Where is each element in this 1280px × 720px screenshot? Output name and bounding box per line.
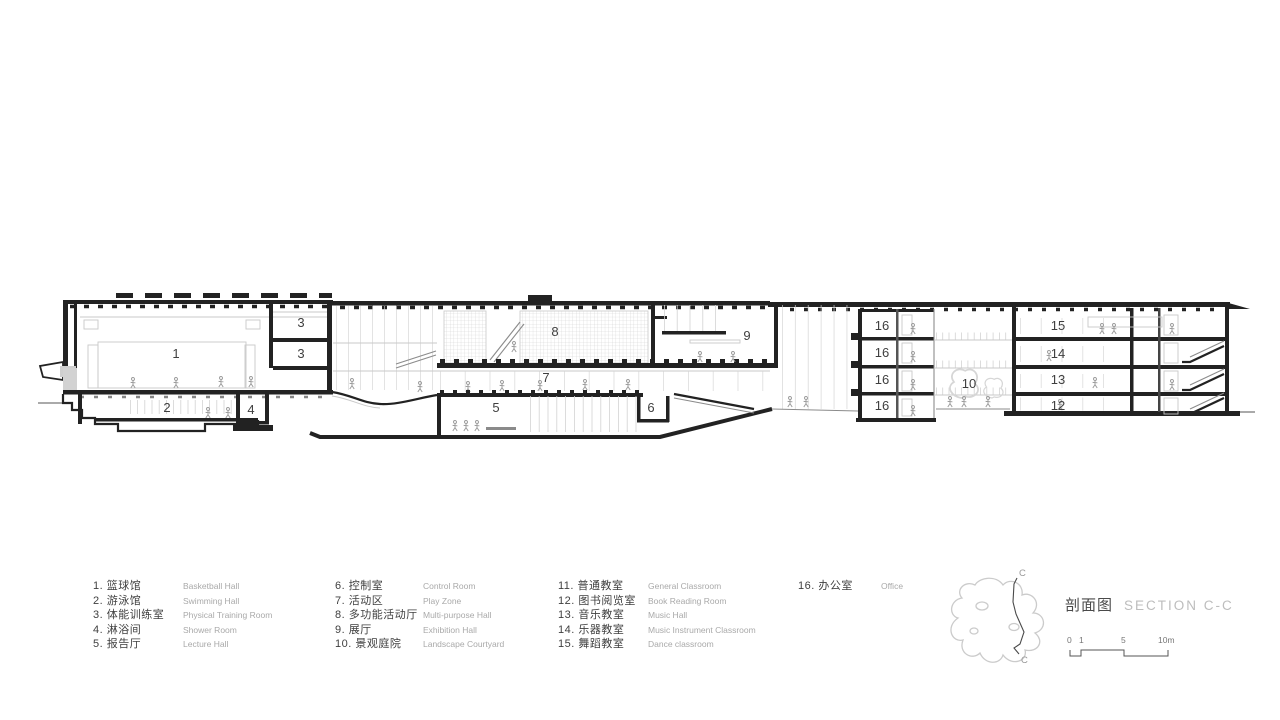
- legend-column-2: 6. 控制室Control Room 7. 活动区Play Zone 8. 多功…: [335, 579, 504, 652]
- legend-item: 14. 乐器教室Music Instrument Classroom: [558, 623, 756, 638]
- legend-label-en: Shower Room: [183, 623, 237, 638]
- legend-label: 16. 办公室: [798, 579, 881, 594]
- legend-column-1: 1. 篮球馆Basketball Hall 2. 游泳馆Swimming Hal…: [93, 579, 272, 652]
- legend-label-en: Control Room: [423, 579, 475, 594]
- legend-column-3: 11. 普通教室General Classroom 12. 图书阅览室Book …: [558, 579, 756, 652]
- legend-label: 11. 普通教室: [558, 579, 648, 594]
- scale-label-10: 10m: [1158, 635, 1175, 645]
- legend-label-en: Music Instrument Classroom: [648, 623, 756, 638]
- office-stack-16: [851, 309, 936, 422]
- legend-item: 1. 篮球馆Basketball Hall: [93, 579, 272, 594]
- room-label: 1: [172, 346, 179, 361]
- legend-label: 3. 体能训练室: [93, 608, 183, 623]
- legend-label-en: Swimming Hall: [183, 594, 239, 609]
- legend-item: 7. 活动区Play Zone: [335, 594, 504, 609]
- legend-item: 2. 游泳馆Swimming Hall: [93, 594, 272, 609]
- scale-label-5: 5: [1121, 635, 1126, 645]
- classroom-block: [1004, 302, 1255, 416]
- scale-bar: 0 1 5 10m: [1067, 635, 1175, 656]
- legend-label: 13. 音乐教室: [558, 608, 648, 623]
- legend-item: 11. 普通教室General Classroom: [558, 579, 756, 594]
- scale-label-0: 0: [1067, 635, 1072, 645]
- courtyard-10: [934, 336, 1012, 409]
- legend-label-en: Dance classroom: [648, 637, 714, 652]
- room-label: 10: [962, 376, 976, 391]
- legend-column-4: 16. 办公室Office: [798, 579, 903, 594]
- room-label: 14: [1051, 346, 1065, 361]
- legend-label-en: Music Hall: [648, 608, 687, 623]
- legend-item: 8. 多功能活动厅Multi-purpose Hall: [335, 608, 504, 623]
- legend-label: 2. 游泳馆: [93, 594, 183, 609]
- legend-label-en: General Classroom: [648, 579, 721, 594]
- legend-label-en: Physical Training Room: [183, 608, 272, 623]
- legend-label-en: Lecture Hall: [183, 637, 228, 652]
- left-block: [38, 296, 333, 432]
- section-mark-bottom: C: [1021, 655, 1028, 666]
- scale-label-1: 1: [1079, 635, 1084, 645]
- room-label: 4: [247, 402, 254, 417]
- room-label: 15: [1051, 318, 1065, 333]
- room-label: 2: [163, 400, 170, 415]
- legend-label-en: Book Reading Room: [648, 594, 726, 609]
- legend-label: 14. 乐器教室: [558, 623, 648, 638]
- legend-label: 10. 景观庭院: [335, 637, 423, 652]
- legend-item: 3. 体能训练室Physical Training Room: [93, 608, 272, 623]
- room-label: 16: [875, 372, 889, 387]
- room-label: 16: [875, 398, 889, 413]
- legend-item: 4. 淋浴间Shower Room: [93, 623, 272, 638]
- legend-label: 8. 多功能活动厅: [335, 608, 423, 623]
- legend-item: 10. 景观庭院Landscape Courtyard: [335, 637, 504, 652]
- legend-item: 9. 展厅Exhibition Hall: [335, 623, 504, 638]
- legend-label-en: Basketball Hall: [183, 579, 239, 594]
- room-label: 12: [1051, 398, 1065, 413]
- legend-label: 4. 淋浴间: [93, 623, 183, 638]
- room-label: 3: [297, 315, 304, 330]
- room-label: 3: [297, 346, 304, 361]
- title-english: SECTION C-C: [1124, 598, 1234, 613]
- legend-label: 15. 舞蹈教室: [558, 637, 648, 652]
- key-plan: C C: [951, 568, 1044, 666]
- legend-label-en: Multi-purpose Hall: [423, 608, 492, 623]
- room-label: 13: [1051, 372, 1065, 387]
- exhibition-hall-9: [651, 305, 778, 365]
- room-label: 6: [647, 400, 654, 415]
- legend-item: 5. 报告厅Lecture Hall: [93, 637, 272, 652]
- room-label: 16: [875, 318, 889, 333]
- legend-item: 6. 控制室Control Room: [335, 579, 504, 594]
- room-label: 7: [542, 370, 549, 385]
- section-mark-top: C: [1019, 568, 1026, 579]
- legend-item: 16. 办公室Office: [798, 579, 903, 594]
- legend-label: 9. 展厅: [335, 623, 423, 638]
- legend-label: 12. 图书阅览室: [558, 594, 648, 609]
- room-label: 8: [551, 324, 558, 339]
- legend-label-en: Office: [881, 579, 903, 594]
- legend-label: 1. 篮球馆: [93, 579, 183, 594]
- legend-item: 13. 音乐教室Music Hall: [558, 608, 756, 623]
- legend-label: 7. 活动区: [335, 594, 423, 609]
- legend-label: 6. 控制室: [335, 579, 423, 594]
- legend-label-en: Play Zone: [423, 594, 461, 609]
- room-label: 9: [743, 328, 750, 343]
- hall-8: [437, 311, 778, 368]
- drawing-title: 剖面图 SECTION C-C: [1065, 594, 1234, 615]
- legend-item: 15. 舞蹈教室Dance classroom: [558, 637, 756, 652]
- room-label: 5: [492, 400, 499, 415]
- room-label: 16: [875, 345, 889, 360]
- legend-label-en: Exhibition Hall: [423, 623, 477, 638]
- legend-item: 12. 图书阅览室Book Reading Room: [558, 594, 756, 609]
- play-zone-7: [437, 371, 770, 392]
- legend-label: 5. 报告厅: [93, 637, 183, 652]
- architectural-sheet: 1 2 3 3 4 5 6 7 8 9 16 16 16 16 10 15 14…: [0, 0, 1280, 720]
- title-chinese: 剖面图: [1065, 594, 1113, 615]
- legend-label-en: Landscape Courtyard: [423, 637, 504, 652]
